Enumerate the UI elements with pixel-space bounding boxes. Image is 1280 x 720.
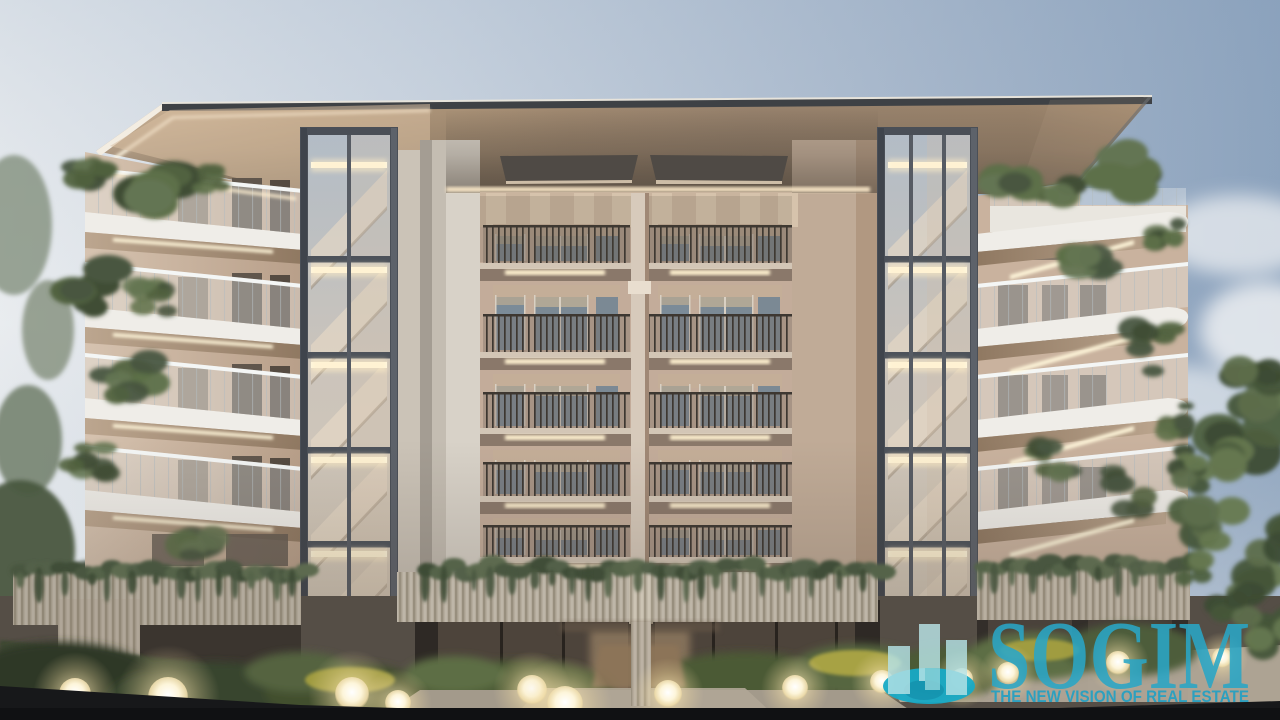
svg-text:THE NEW VISION OF REAL ESTATE: THE NEW VISION OF REAL ESTATE <box>991 688 1249 706</box>
